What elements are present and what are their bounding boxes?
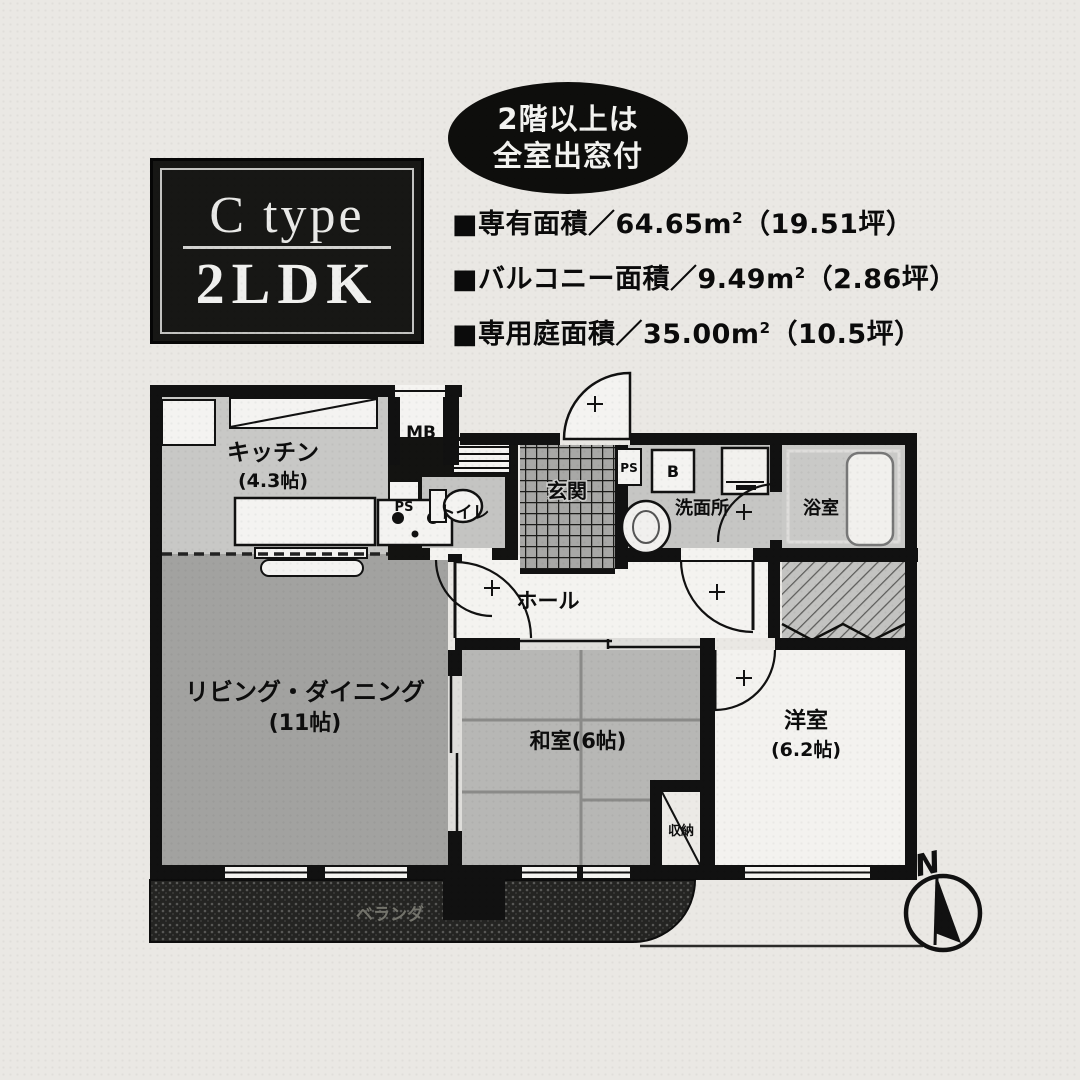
type-badge-title: C type bbox=[209, 189, 364, 243]
closet-label: 収納 bbox=[668, 823, 694, 839]
spec-garden-area: ■専用庭面積／35.00m2（10.5坪） bbox=[452, 304, 957, 359]
hall-label: ホール bbox=[517, 589, 580, 613]
western-room-label: 洋室 bbox=[784, 708, 828, 734]
floors bbox=[162, 397, 905, 865]
floor-plan: キッチン (4.3帖) MB PS トイレ 玄関 PS B 洗面所 浴室 ホール… bbox=[140, 370, 925, 960]
wall-hall-bottom-left bbox=[455, 638, 520, 650]
wall-living-hall-head bbox=[448, 554, 462, 562]
meter-box-label: MB bbox=[406, 423, 436, 443]
veranda-divider-stub bbox=[443, 865, 505, 920]
wall-mb-right bbox=[443, 385, 459, 465]
wall-hall-right-stub bbox=[768, 560, 780, 638]
toilet-label: トイレ bbox=[439, 503, 490, 523]
type-badge: C type 2LDK bbox=[150, 158, 424, 344]
compass-needle bbox=[935, 877, 961, 943]
wall-storage-left bbox=[650, 792, 662, 865]
closet-hatch bbox=[782, 562, 905, 638]
wall-head-washitsu bbox=[700, 638, 715, 650]
kitchen-label: キッチン bbox=[227, 440, 319, 466]
entrance-label: 玄関 bbox=[547, 479, 587, 503]
bathroom-label: 浴室 bbox=[803, 497, 839, 519]
counter-dish bbox=[261, 560, 363, 576]
pipe-space-toilet-label: PS bbox=[395, 500, 414, 515]
veranda-label: ベランダ bbox=[356, 904, 424, 925]
entrance-tile-floor bbox=[520, 445, 615, 569]
kitchen-sink-counter bbox=[235, 498, 375, 545]
entrance-step-edge bbox=[520, 569, 615, 574]
post-washitsu-bottom bbox=[448, 831, 462, 865]
spec-balcony-area: ■バルコニー面積／9.49m2（2.86坪） bbox=[452, 249, 957, 304]
compass: N bbox=[880, 845, 1010, 975]
area-specs: ■専有面積／64.65m2（19.51坪） ■バルコニー面積／9.49m2（2.… bbox=[452, 194, 957, 359]
bathroom-door-gap bbox=[770, 492, 782, 540]
wall-western-top bbox=[775, 638, 917, 650]
bay-window-callout: 2階以上は 全室出窓付 bbox=[448, 82, 688, 194]
living-dining-label: リビング・ダイニング bbox=[185, 678, 425, 706]
wall-right-outer bbox=[905, 433, 917, 880]
washroom-door-gap bbox=[681, 548, 753, 560]
wall-washitsu-western bbox=[700, 650, 715, 865]
spec-exclusive-area: ■専有面積／64.65m2（19.51坪） bbox=[452, 194, 957, 249]
entrance-door-leaf bbox=[564, 373, 630, 439]
kitchen-corner-unit bbox=[162, 400, 215, 445]
stove-burner-3 bbox=[412, 531, 419, 538]
western-room-size-label: (6.2帖) bbox=[771, 738, 841, 761]
wall-left-outer bbox=[150, 385, 162, 880]
compass-north-label: N bbox=[912, 845, 944, 884]
japanese-room-label: 和室(6帖) bbox=[530, 729, 627, 753]
kitchen-size-label: (4.3帖) bbox=[238, 469, 308, 492]
living-dining-size-label: (11帖) bbox=[269, 711, 342, 736]
boiler-label: B bbox=[667, 462, 679, 481]
callout-line-2: 全室出窓付 bbox=[493, 138, 643, 175]
post-washitsu-top bbox=[448, 650, 462, 676]
floorplan-page: C type 2LDK 2階以上は 全室出窓付 ■専有面積／64.65m2（19… bbox=[0, 0, 1080, 1080]
bathtub bbox=[847, 453, 893, 545]
wall-kitchen-mb bbox=[388, 397, 400, 465]
type-badge-rule bbox=[183, 246, 391, 249]
callout-line-1: 2階以上は bbox=[497, 101, 638, 138]
living-dining-floor bbox=[162, 554, 448, 865]
pipe-space-hall-label: PS bbox=[620, 461, 637, 475]
washroom-label: 洗面所 bbox=[675, 497, 729, 519]
washbasin bbox=[622, 501, 670, 553]
wall-storage-top bbox=[650, 780, 715, 792]
wall-top-right bbox=[460, 433, 917, 445]
type-badge-ldk: 2LDK bbox=[196, 254, 379, 314]
